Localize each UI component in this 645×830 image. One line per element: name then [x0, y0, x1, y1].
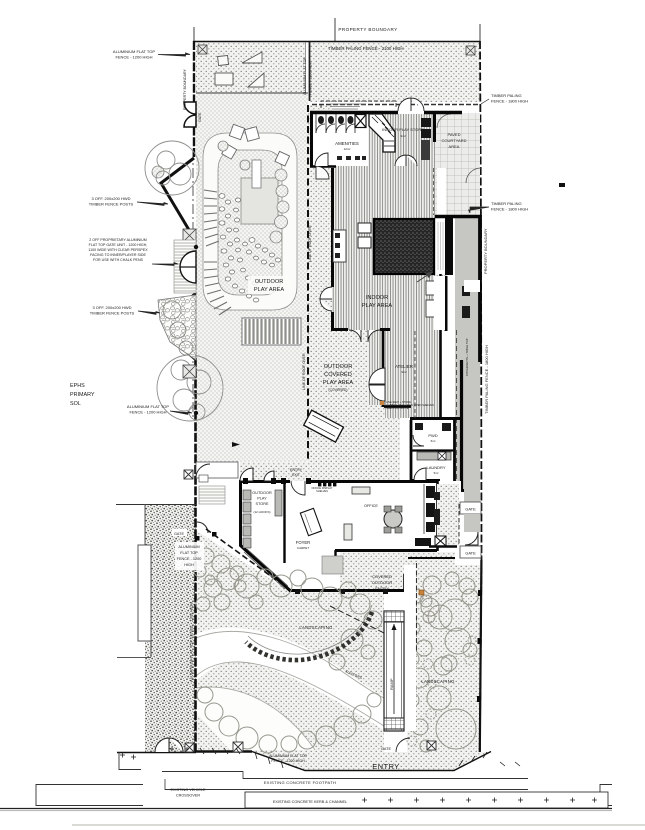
svg-text:ALUMINIUM FLAT TOP FENCE - 120: ALUMINIUM FLAT TOP FENCE - 1200 HIGH [189, 602, 194, 682]
svg-text:INDOOR PLAY STORE: INDOOR PLAY STORE [382, 127, 424, 132]
svg-text:FLAT TOP: FLAT TOP [180, 551, 198, 555]
svg-text:CROSSOVER: CROSSOVER [176, 794, 201, 798]
svg-text:9m²: 9m² [400, 134, 405, 138]
svg-text:SHELVING ABOVE: SHELVING ABOVE [386, 406, 409, 410]
svg-text:TIMBER FENCE POSTS: TIMBER FENCE POSTS [90, 311, 135, 316]
svg-text:EXISTING VEHICLE: EXISTING VEHICLE [170, 788, 205, 792]
svg-text:9m²: 9m² [401, 370, 406, 374]
svg-text:PLAY AREA: PLAY AREA [254, 287, 285, 293]
svg-text:TIMBER PALING: TIMBER PALING [491, 93, 522, 98]
svg-text:ALUMINIUM FLAT TOP: ALUMINIUM FLAT TOP [303, 57, 307, 95]
svg-text:2 OFF PROPRIETARY ALUMINIUM: 2 OFF PROPRIETARY ALUMINIUM [89, 238, 147, 242]
svg-text:FENCE - 1200 HIGH: FENCE - 1200 HIGH [271, 759, 305, 763]
svg-text:STORE: STORE [255, 502, 268, 506]
svg-text:PROPERTY BOUNDARY: PROPERTY BOUNDARY [338, 27, 397, 32]
svg-text:FOYER: FOYER [296, 540, 310, 545]
svg-text:CARPET: CARPET [297, 546, 309, 550]
svg-text:LANDSCAPING: LANDSCAPING [421, 679, 454, 684]
svg-text:LINE OF ROOF OVER: LINE OF ROOF OVER [308, 225, 312, 262]
svg-text:ENTRY: ENTRY [375, 586, 389, 591]
svg-text:GATE: GATE [381, 747, 392, 751]
svg-text:EXIT: EXIT [292, 473, 301, 477]
svg-text:PLAY AREA: PLAY AREA [323, 380, 354, 386]
svg-text:ALUMINIUM FLAT TOP: ALUMINIUM FLAT TOP [113, 49, 155, 54]
svg-text:PRIMARY: PRIMARY [70, 392, 95, 398]
svg-text:OUTDOOR: OUTDOOR [372, 580, 393, 585]
svg-text:FENCE - 1800 HIGH: FENCE - 1800 HIGH [491, 207, 528, 212]
svg-text:GATE: GATE [174, 532, 185, 536]
svg-text:(COVERED): (COVERED) [328, 388, 347, 392]
svg-text:ALUMINIUM FLAT TOP: ALUMINIUM FLAT TOP [127, 404, 169, 409]
svg-text:PROPERTY BOUNDARY: PROPERTY BOUNDARY [483, 228, 488, 274]
svg-text:(12 HOOKS): (12 HOOKS) [253, 510, 270, 514]
svg-text:FLAT TOP GATE UNIT - 1200 HIGH: FLAT TOP GATE UNIT - 1200 HIGH, [89, 243, 148, 247]
svg-text:FOR USE WITH CHALK PENS: FOR USE WITH CHALK PENS [93, 258, 144, 262]
svg-text:FACING TO INNER/PLAYER SIDE: FACING TO INNER/PLAYER SIDE [90, 253, 146, 257]
svg-text:GATE: GATE [465, 551, 476, 556]
svg-text:5m²: 5m² [434, 471, 439, 475]
svg-text:5m²: 5m² [431, 439, 436, 443]
svg-text:PWD: PWD [428, 433, 437, 438]
svg-text:COURTYARD: COURTYARD [442, 138, 467, 143]
svg-text:FENCE - 1200 HIGH: FENCE - 1200 HIGH [115, 55, 152, 60]
svg-text:TIMBER PALING: TIMBER PALING [491, 201, 522, 206]
svg-text:LINE OF ROOF OVER: LINE OF ROOF OVER [302, 353, 306, 390]
svg-text:OUTDOOR: OUTDOOR [255, 279, 284, 285]
svg-text:EPHS: EPHS [70, 383, 85, 389]
svg-text:SOL: SOL [70, 401, 81, 407]
svg-text:ENTRY: ENTRY [290, 468, 303, 472]
svg-text:EXISTING CONCRETE FOOTPATH: EXISTING CONCRETE FOOTPATH [264, 780, 336, 785]
svg-text:ATELIER: ATELIER [395, 364, 413, 369]
svg-text:OUTDOOR: OUTDOOR [252, 491, 272, 495]
svg-text:FENCE - 1200 HIGH: FENCE - 1200 HIGH [129, 410, 166, 415]
svg-text:3 OFF. 200x200 HWD: 3 OFF. 200x200 HWD [91, 196, 130, 201]
svg-text:PROPERTY BOUNDARY: PROPERTY BOUNDARY [183, 68, 187, 110]
svg-text:LAUNDRY: LAUNDRY [426, 465, 445, 470]
svg-text:FENCE - 1200: FENCE - 1200 [177, 557, 202, 561]
svg-text:COVERED: COVERED [324, 372, 352, 378]
svg-text:AREA: AREA [449, 144, 460, 149]
svg-text:INDOOR: INDOOR [366, 295, 388, 301]
svg-text:RAMP: RAMP [389, 678, 394, 690]
svg-text:1100 WIDE WITH CLEAR PERSPEX: 1100 WIDE WITH CLEAR PERSPEX [88, 248, 148, 252]
svg-text:TIMBER FENCE POSTS: TIMBER FENCE POSTS [89, 202, 134, 207]
svg-text:FENCE - 1200 HIGH: FENCE - 1200 HIGH [309, 61, 313, 95]
svg-text:OFFICE: OFFICE [364, 504, 378, 508]
svg-text:KITCHENETTE + TABLE TOP: KITCHENETTE + TABLE TOP [465, 338, 469, 376]
svg-text:3 OFF. 200x200 HWD: 3 OFF. 200x200 HWD [92, 305, 131, 310]
svg-text:ALUMINIUM: ALUMINIUM [178, 545, 199, 549]
svg-text:SHELVES: SHELVES [316, 489, 328, 493]
svg-text:OUTDOOR: OUTDOOR [324, 364, 353, 370]
svg-text:OPEN SHELVES: OPEN SHELVES [414, 403, 434, 407]
svg-text:TIMBER PALING FENCE - 1800 HIG: TIMBER PALING FENCE - 1800 HIGH [484, 345, 489, 414]
svg-text:GATE: GATE [198, 112, 202, 122]
svg-text:ENTRY: ENTRY [372, 762, 399, 771]
svg-text:COVERED: COVERED [372, 574, 392, 579]
svg-text:GATE: GATE [465, 507, 476, 512]
svg-text:PLAY AREA: PLAY AREA [362, 303, 393, 309]
svg-text:PLAY: PLAY [257, 497, 267, 501]
svg-text:HIGH: HIGH [184, 563, 194, 567]
svg-text:12m²: 12m² [344, 147, 351, 151]
svg-text:AMENITIES: AMENITIES [335, 141, 359, 146]
svg-text:TIMBER PALING FENCE - 2100 HIG: TIMBER PALING FENCE - 2100 HIGH [328, 46, 404, 51]
svg-text:LANDSCAPING: LANDSCAPING [299, 625, 332, 630]
svg-text:PAVED: PAVED [448, 132, 461, 137]
svg-text:FENCE - 1800 HIGH: FENCE - 1800 HIGH [491, 99, 528, 104]
svg-text:ALUMINIUM FLAT TOP: ALUMINIUM FLAT TOP [269, 754, 307, 758]
svg-text:EXISTING CONCRETE KERB & CHANN: EXISTING CONCRETE KERB & CHANNEL [273, 800, 347, 804]
